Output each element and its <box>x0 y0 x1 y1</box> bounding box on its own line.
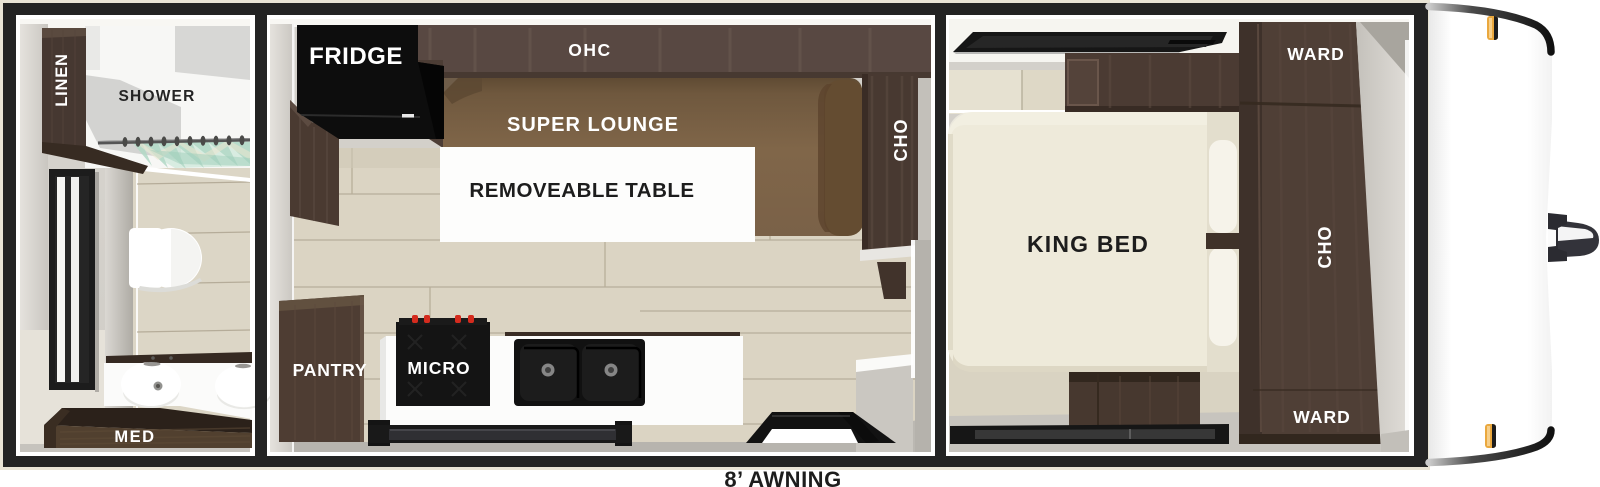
svg-text:SHOWER: SHOWER <box>119 88 196 105</box>
svg-text:CHO: CHO <box>1315 226 1335 269</box>
svg-text:CHO: CHO <box>891 119 911 162</box>
svg-text:WARD: WARD <box>1293 407 1350 427</box>
svg-text:SUPER LOUNGE: SUPER LOUNGE <box>507 114 679 136</box>
svg-text:MICRO: MICRO <box>407 358 470 378</box>
svg-text:KING BED: KING BED <box>1027 231 1149 257</box>
svg-text:OHC: OHC <box>568 40 611 60</box>
svg-text:WARD: WARD <box>1287 44 1344 64</box>
svg-text:LINEN: LINEN <box>53 53 71 107</box>
svg-text:MED: MED <box>114 428 155 446</box>
svg-text:8’ AWNING: 8’ AWNING <box>724 467 841 487</box>
svg-text:FRIDGE: FRIDGE <box>309 43 403 70</box>
svg-text:REMOVEABLE TABLE: REMOVEABLE TABLE <box>469 179 694 202</box>
svg-text:PANTRY: PANTRY <box>293 360 368 380</box>
